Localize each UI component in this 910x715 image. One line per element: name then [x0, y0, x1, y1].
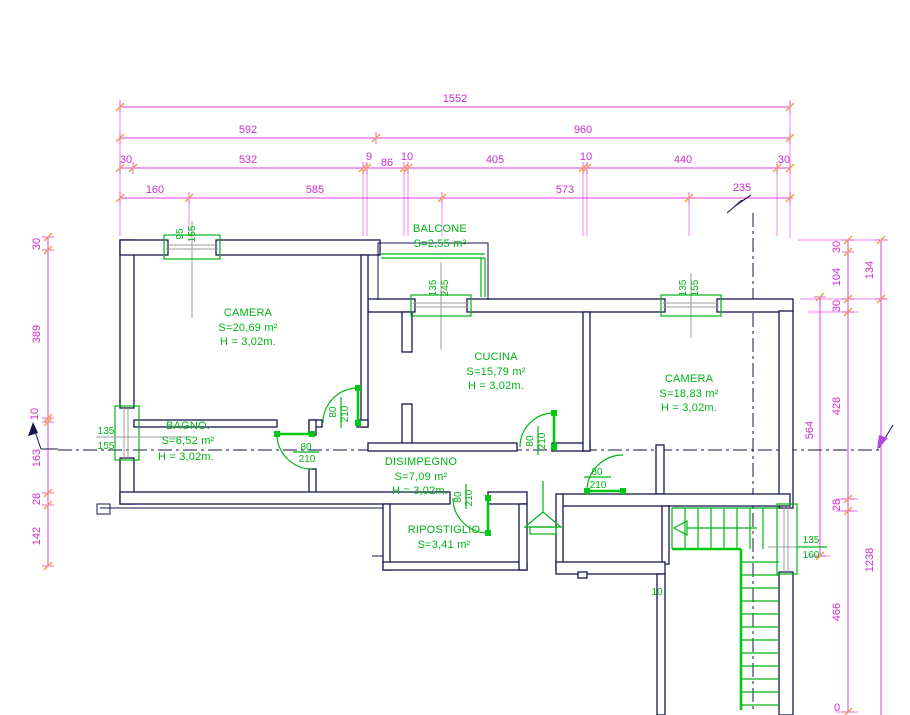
room-label-disimpegno: DISIMPEGNO [385, 456, 458, 468]
room-label-bagno: BAGNO. [166, 420, 210, 432]
section-arrow-right [877, 435, 888, 450]
dim-total-width: 1552 [443, 93, 467, 105]
room-label-cucina: CUCINA [474, 351, 518, 363]
dim-r4-1: 585 [306, 184, 324, 196]
dim-l-5: 142 [31, 527, 43, 545]
dim-r3-6: 10 [580, 151, 592, 163]
door1-w: 80 [300, 442, 312, 453]
win4-h: 155 [98, 441, 115, 452]
room-height-camera1: H = 3,02m. [220, 336, 276, 348]
wall-niche-lower [402, 404, 412, 444]
win3-h: 155 [690, 279, 701, 296]
dim-r4-2: 573 [556, 184, 574, 196]
wall-ripostiglio-south [383, 562, 527, 570]
terrace-outline [97, 504, 387, 556]
dim-r-564: 564 [804, 421, 816, 439]
win1-h: 155 [187, 225, 198, 242]
win3-w: 135 [678, 279, 689, 296]
room-height-bagno: H = 3,02m. [158, 451, 214, 463]
wall-south-c [562, 494, 790, 506]
win1-w: 95 [175, 228, 186, 240]
door4-h: 210 [590, 480, 607, 491]
door3-w: 80 [525, 435, 536, 447]
wall-ext-right-upper [779, 311, 793, 508]
dim-rc2-0: 30 [831, 241, 843, 253]
wall-ext-right-lower [779, 572, 793, 715]
dim-r3-2: 9 [366, 151, 372, 163]
room-label-balcone: BALCONE [413, 223, 467, 235]
room-area-bagno: S=6,52 m² [162, 435, 215, 447]
wall-camera2-west-lower [656, 445, 664, 494]
room-height-cucina: H = 3,02m. [468, 380, 524, 392]
room-height-disimpegno: H = 3,02m. [392, 485, 448, 497]
dim-l-3: 163 [31, 449, 43, 467]
floor-plan-canvas: 1552 592 960 30 532 9 86 10 405 10 440 3… [0, 0, 910, 715]
room-label-camera2: CAMERA [665, 373, 714, 385]
dim-r3-0: 30 [120, 154, 132, 166]
dim-rc2-4: 28 [831, 499, 843, 511]
dim-r4-3: 235 [733, 182, 751, 194]
wall-ripostiglio-east [519, 504, 527, 570]
dim-rc2-3: 428 [831, 397, 843, 415]
wall-entry-east [556, 494, 563, 570]
wall-camera1-east [361, 255, 368, 427]
dim-r3-4: 10 [401, 151, 413, 163]
floor-plan-drawing: 1552 592 960 30 532 9 86 10 405 10 440 3… [0, 0, 910, 715]
dimension-chain-right: 564 30 104 30 428 28 466 0 134 1238 [798, 236, 888, 715]
win2-w: 135 [428, 279, 439, 296]
room-area-camera2: S=18,83 m² [659, 388, 718, 400]
room-area-disimpegno: S=7,09 m² [395, 471, 448, 483]
win2-h: 245 [440, 279, 451, 296]
dim-rc2-5: 466 [831, 603, 843, 621]
wall-landing-south [556, 562, 665, 574]
dimension-chain-left: 30 389 10 163 28 142 [29, 233, 54, 570]
door5-h: 210 [464, 489, 475, 506]
dim-r3-1: 532 [239, 154, 257, 166]
dim-r3-7: 440 [674, 154, 692, 166]
staircase [672, 508, 779, 710]
section-arrow-left [28, 422, 38, 436]
dim-r3-8: 30 [778, 154, 790, 166]
dimension-chain-top: 1552 592 960 30 532 9 86 10 405 10 440 3… [116, 93, 794, 238]
door1-h: 210 [299, 454, 316, 465]
wall-notch [578, 572, 587, 578]
dim-right-half: 960 [574, 124, 592, 136]
door5-w: 80 [453, 491, 464, 503]
wall-top-main-a [368, 299, 415, 312]
wall-niche-upper [402, 312, 412, 352]
stair-gap-label: 10 [651, 587, 663, 598]
wall-top-main-b [467, 299, 665, 312]
room-label-camera1: CAMERA [224, 307, 273, 319]
room-area-cucina: S=15,79 m² [466, 366, 525, 378]
win5-h: 160 [803, 550, 820, 561]
window-bagno [115, 406, 139, 460]
dim-l-2: 10 [29, 408, 41, 420]
wall-south-b [488, 492, 527, 504]
wall-cucina-south-a [368, 443, 517, 451]
wall-ripostiglio-west [383, 504, 390, 570]
door2-h: 210 [340, 405, 351, 422]
wall-stair-west-upper [662, 506, 669, 564]
dim-rc2-6: 0 [834, 702, 840, 714]
door4-w: 80 [591, 467, 603, 478]
room-height-camera2: H = 3,02m. [661, 402, 717, 414]
door3-h: 210 [537, 432, 548, 449]
wall-ext-left-upper [120, 240, 134, 408]
dim-r4-0: 160 [146, 184, 164, 196]
dim-rc2-1: 104 [831, 268, 843, 286]
room-area-ripostiglio: S=3,41 m² [418, 539, 471, 551]
dim-left-half: 592 [239, 124, 257, 136]
dim-l-4: 28 [31, 493, 43, 505]
wall-top-camera1-a [120, 240, 168, 255]
dim-r3-3: 86 [381, 157, 393, 169]
win4-w: 135 [98, 426, 115, 437]
wall-bagno-east-lower [309, 469, 316, 494]
wall-top-main-c [717, 299, 793, 312]
win5-w: 135 [803, 535, 820, 546]
dim-r3-5: 405 [486, 154, 504, 166]
room-area-balcone: S=2,55 m² [414, 238, 467, 250]
dim-rc3-0: 134 [864, 261, 876, 279]
wall-top-camera1-b [216, 240, 380, 255]
room-area-camera1: S=20,69 m² [218, 322, 277, 334]
door2-w: 80 [328, 406, 339, 418]
wall-cucina-camera2 [583, 312, 590, 451]
window-stairwell [777, 504, 797, 574]
dim-rc3-1: 1238 [864, 548, 876, 572]
walls [120, 240, 793, 715]
room-label-ripostiglio: RIPOSTIGLIO [408, 524, 481, 536]
dim-l-0: 30 [31, 238, 43, 250]
dim-rc2-2: 30 [831, 300, 843, 312]
dim-l-1: 389 [31, 325, 43, 343]
